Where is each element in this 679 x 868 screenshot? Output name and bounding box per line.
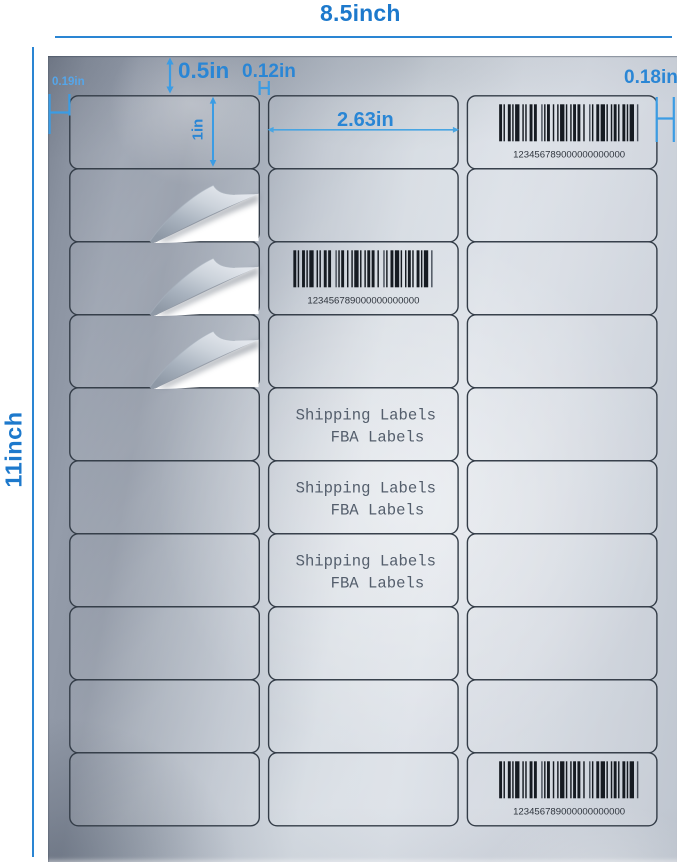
svg-text:Shipping Labels: Shipping Labels — [296, 479, 436, 497]
svg-text:123456789000000000000: 123456789000000000000 — [513, 149, 625, 160]
svg-text:FBA Labels: FBA Labels — [331, 428, 425, 446]
svg-text:123456789000000000000: 123456789000000000000 — [307, 295, 419, 306]
svg-text:Shipping Labels: Shipping Labels — [296, 552, 436, 570]
svg-text:123456789000000000000: 123456789000000000000 — [513, 806, 625, 817]
svg-text:FBA Labels: FBA Labels — [331, 501, 425, 519]
svg-text:Shipping Labels: Shipping Labels — [296, 406, 436, 424]
svg-text:FBA Labels: FBA Labels — [331, 574, 425, 592]
